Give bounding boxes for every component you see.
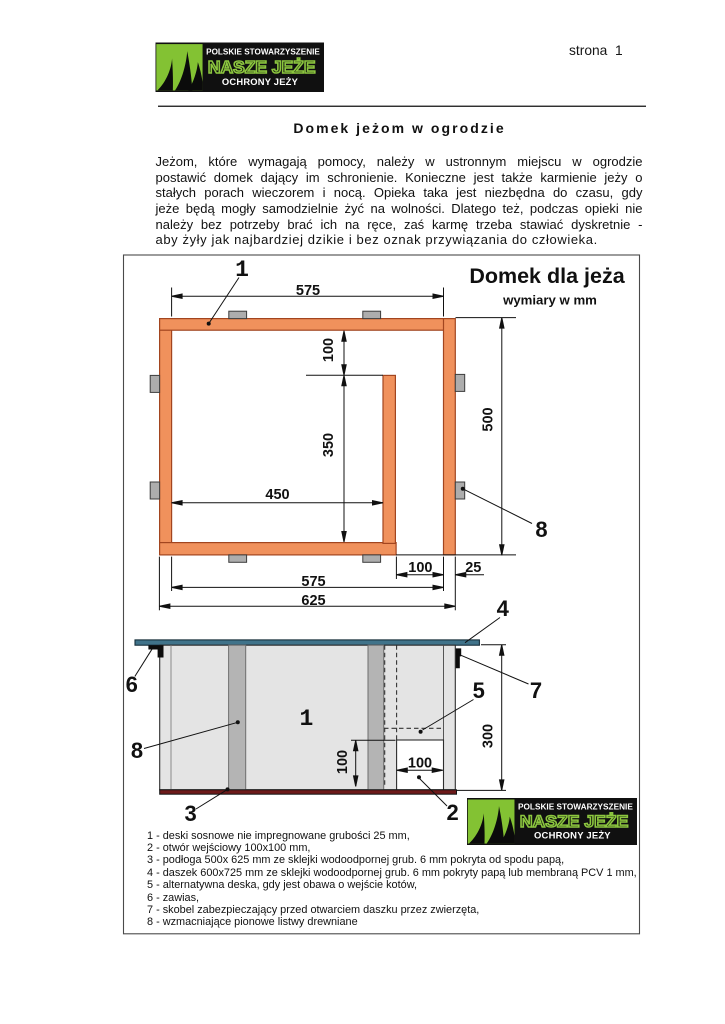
svg-text:wymiary w mm: wymiary w mm: [502, 293, 597, 308]
svg-text:300: 300: [481, 724, 497, 748]
svg-text:5: 5: [473, 678, 485, 703]
svg-text:8: 8: [535, 517, 547, 542]
svg-text:500: 500: [481, 407, 497, 431]
svg-text:6: 6: [126, 672, 138, 697]
svg-text:25: 25: [465, 560, 481, 576]
svg-text:2: 2: [446, 800, 458, 825]
svg-text:100: 100: [408, 560, 432, 576]
svg-text:100: 100: [408, 756, 432, 772]
svg-text:575: 575: [296, 283, 320, 299]
svg-text:350: 350: [321, 433, 337, 457]
svg-text:3: 3: [184, 801, 196, 826]
svg-text:575: 575: [301, 574, 325, 590]
svg-text:100: 100: [335, 750, 351, 774]
svg-text:4: 4: [497, 596, 510, 621]
svg-text:1: 1: [299, 706, 313, 732]
svg-text:625: 625: [301, 593, 325, 609]
svg-text:Domek dla jeża: Domek dla jeża: [469, 264, 625, 288]
svg-text:1: 1: [235, 257, 249, 283]
svg-text:7: 7: [530, 678, 542, 703]
svg-text:100: 100: [321, 338, 337, 362]
svg-text:8: 8: [131, 738, 143, 763]
svg-text:450: 450: [265, 487, 289, 503]
